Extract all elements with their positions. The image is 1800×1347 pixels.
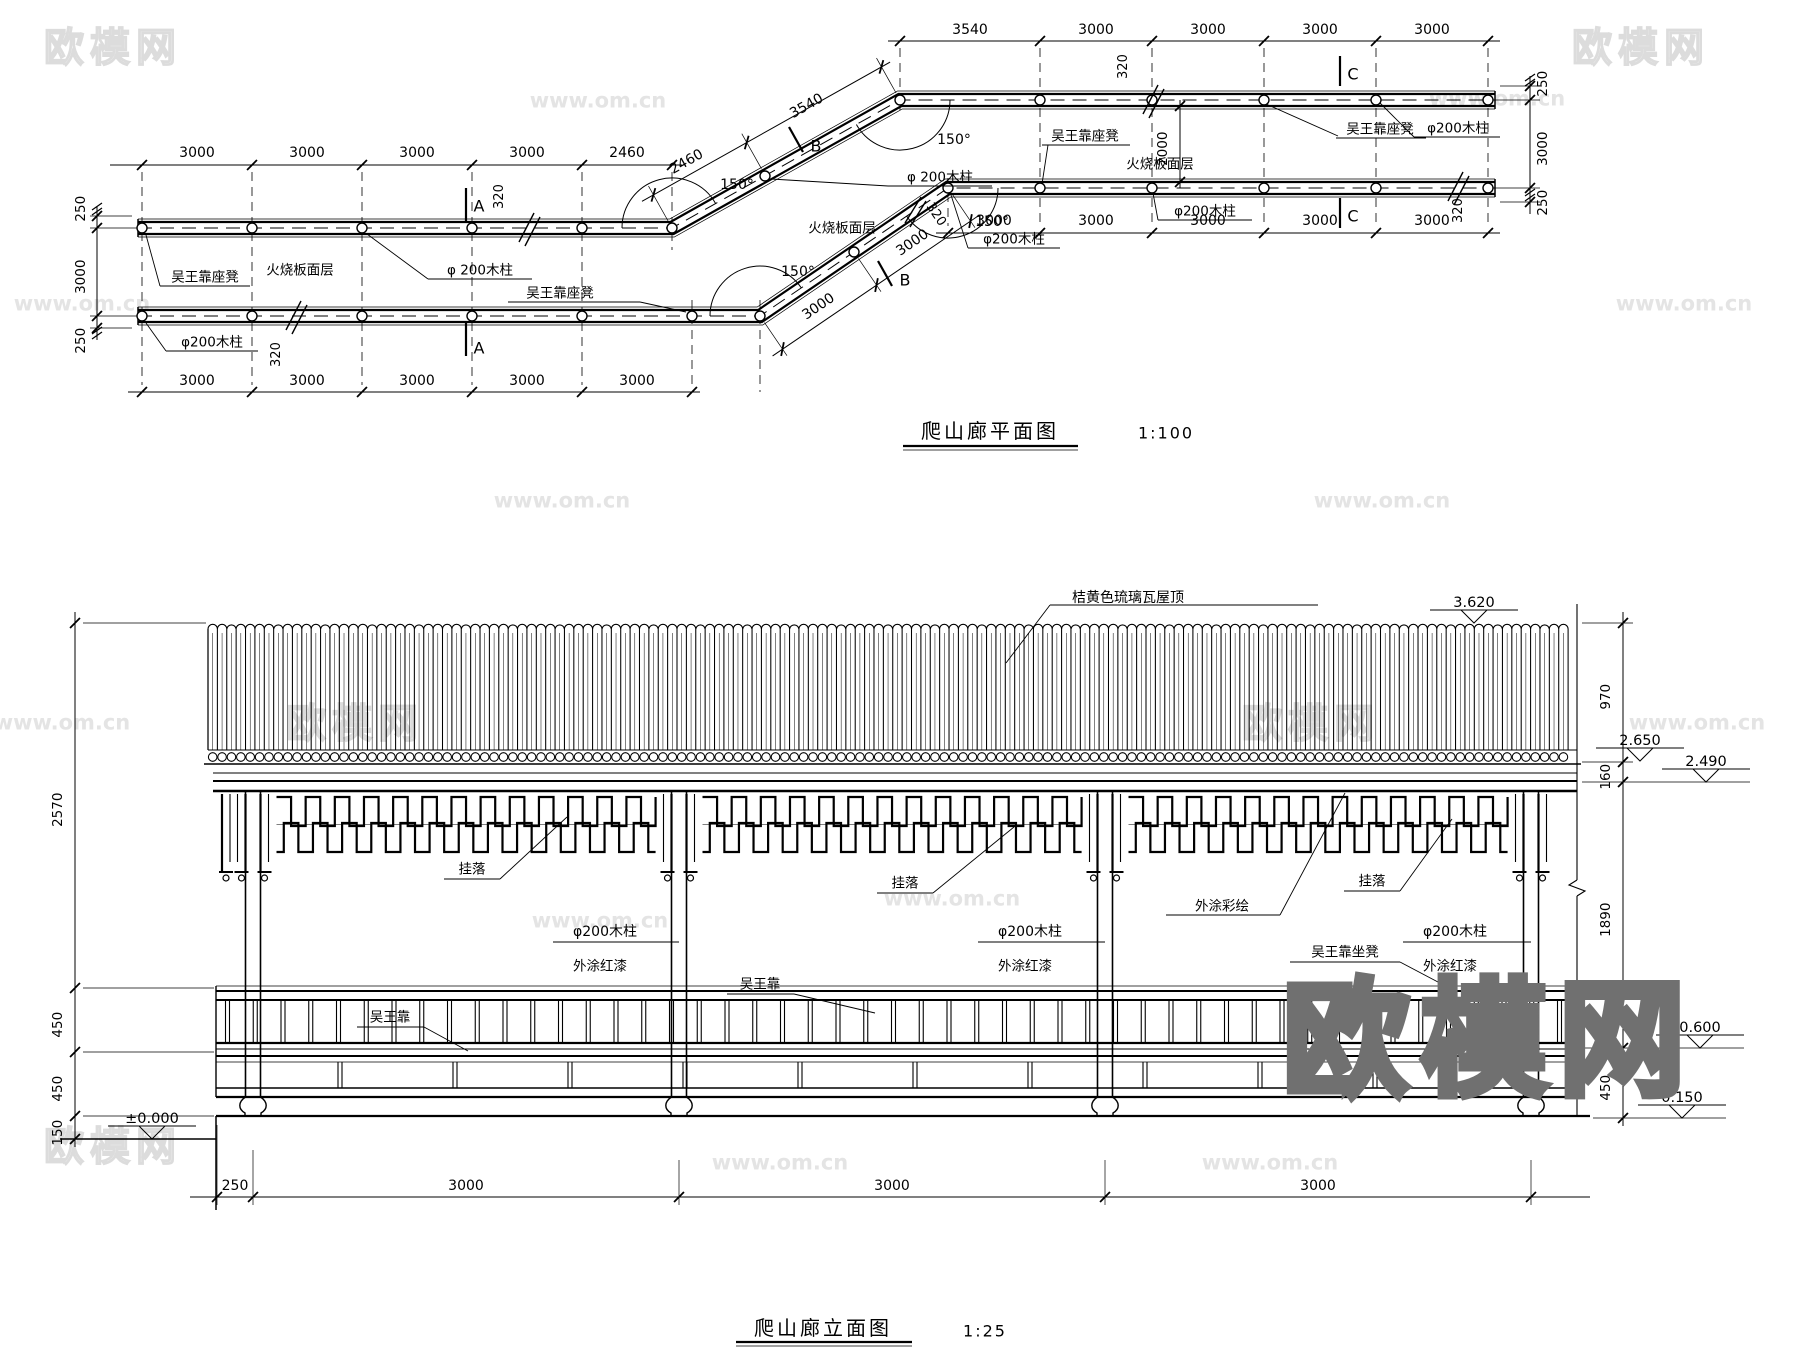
dim-label: 3000: [1414, 213, 1450, 229]
section-mark: A: [474, 197, 485, 216]
section-mark: B: [811, 137, 822, 156]
annotation: 吴王靠座凳: [526, 286, 594, 302]
dim-label: 320: [1116, 54, 1131, 79]
dim-label: 160: [1598, 764, 1614, 790]
dim-label: 3000: [289, 373, 325, 389]
annotation: 吴王靠座凳: [1346, 122, 1414, 138]
dim-label: 2460: [609, 145, 645, 161]
dim-label: 250: [73, 328, 89, 354]
dim-label: 250: [73, 196, 89, 222]
watermark-site: www.om.cn: [1616, 291, 1753, 315]
section-mark: C: [1347, 207, 1358, 226]
dim-label: 3000: [1535, 132, 1551, 166]
dim-label: 450: [50, 1012, 66, 1038]
plan-title: 爬山廊平面图: [921, 419, 1059, 443]
elevation-scale: 1:25: [963, 1322, 1007, 1341]
annotation: φ 200木柱: [907, 170, 973, 186]
annotation: φ200木柱: [1423, 924, 1487, 940]
watermark-site: www.om.cn: [1314, 488, 1451, 512]
section-mark: C: [1347, 65, 1358, 84]
watermark-brand-large: 欧模网: [1283, 967, 1697, 1114]
watermark-brand: 欧模网: [1242, 701, 1380, 747]
watermark-site: www.om.cn: [1202, 1150, 1339, 1174]
dim-label: 970: [1598, 684, 1614, 710]
cad-sheet: 欧模网欧模网欧模网欧模网欧模网www.om.cnwww.om.cnwww.om.…: [0, 0, 1800, 1347]
annotation: φ200木柱: [998, 924, 1062, 940]
dim-label: 2570: [50, 793, 66, 827]
dim-label: 320: [1451, 198, 1466, 223]
annotation: 桔黄色琉璃瓦屋顶: [1072, 589, 1184, 606]
elev-title: 爬山廊立面图1:25: [736, 1316, 1007, 1346]
plan-walls: [138, 91, 1495, 325]
dim-label: 3000: [1300, 1178, 1336, 1194]
plan-dimensions: 3000300030003000246030003000300030003000…: [73, 22, 1551, 397]
dim-label: 150: [50, 1120, 66, 1146]
annotation: 外涂红漆: [573, 959, 627, 975]
section-mark: B: [900, 271, 911, 290]
dim-label: 3000: [1078, 213, 1114, 229]
dim-label: 1890: [1598, 903, 1614, 937]
plan-angles: 150°150°150°150°: [622, 100, 1009, 316]
annotation: 吴王靠座凳: [171, 270, 239, 286]
annotation: 火烧板面层: [808, 221, 876, 237]
dim-label: 3000: [179, 373, 215, 389]
annotation: 外涂红漆: [998, 959, 1052, 975]
level-marker: ±0.000: [125, 1111, 179, 1127]
annotation: 火烧板面层: [266, 263, 334, 279]
dim-label: 3540: [787, 90, 826, 121]
annotation: φ200木柱: [1427, 121, 1489, 137]
annotation: φ200木柱: [1174, 204, 1236, 220]
dim-label: 3000: [799, 290, 837, 323]
dim-label: 3000: [874, 1178, 910, 1194]
dim-label: 3000: [893, 226, 931, 259]
level-marker: 2.490: [1685, 754, 1727, 770]
annotation: 挂落: [892, 876, 920, 892]
watermark-big: 欧模网: [1283, 967, 1697, 1114]
annotation: 挂落: [459, 862, 486, 878]
angle-label: 150°: [781, 264, 815, 280]
dim-label: 3000: [619, 373, 655, 389]
dim-label: 250: [1535, 71, 1551, 97]
annotation: φ200木柱: [573, 924, 637, 940]
dim-label: 3000: [1078, 22, 1114, 38]
dim-label: 3000: [1302, 213, 1338, 229]
angle-label: 150°: [975, 214, 1009, 230]
section-mark: A: [474, 339, 485, 358]
elev-fretwork: [219, 794, 1550, 881]
annotation: φ200木柱: [983, 232, 1045, 248]
dim-label: 250: [1535, 190, 1551, 216]
watermark-brand: 欧模网: [1572, 25, 1710, 71]
dim-label: 3000: [399, 145, 435, 161]
annotation: 吴王靠坐凳: [1311, 945, 1379, 961]
dim-label: 3000: [179, 145, 215, 161]
level-marker: 2.650: [1619, 733, 1661, 749]
elevation-title: 爬山廊立面图: [754, 1316, 892, 1340]
dim-label: 3000: [1190, 22, 1226, 38]
annotation: φ 200木柱: [447, 263, 513, 279]
dim-label: 2460: [667, 146, 706, 177]
dim-label: 320: [269, 342, 284, 367]
angle-label: 150°: [720, 177, 754, 193]
dim-label: 3000: [448, 1178, 484, 1194]
dim-label: 320: [923, 200, 949, 229]
dim-label: 3540: [952, 22, 988, 38]
dim-label: 450: [50, 1076, 66, 1102]
annotation: 挂落: [1359, 874, 1387, 890]
dim-label: 3000: [289, 145, 325, 161]
dim-label: 3000: [1414, 22, 1450, 38]
annotation: φ200木柱: [181, 335, 243, 351]
level-marker: 3.620: [1453, 595, 1495, 611]
dim-label: 3000: [509, 373, 545, 389]
watermark-site: www.om.cn: [494, 488, 631, 512]
annotation: 吴王靠: [370, 1010, 411, 1026]
dim-label: 3000: [1302, 22, 1338, 38]
annotation: 火烧板面层: [1126, 157, 1194, 173]
plan-scale: 1:100: [1138, 424, 1194, 443]
elev-ground: [60, 604, 1590, 1210]
cad-drawing: 欧模网欧模网欧模网欧模网欧模网www.om.cnwww.om.cnwww.om.…: [0, 0, 1800, 1347]
dim-label: 3000: [399, 373, 435, 389]
annotation: 吴王靠: [740, 977, 781, 993]
dim-label: 3000: [73, 260, 89, 294]
watermark-site: www.om.cn: [14, 291, 151, 315]
angle-label: 150°: [937, 132, 971, 148]
plan-beam-marks: 320320320320320: [269, 54, 1469, 367]
plan-labels: 吴王靠座凳火烧板面层φ 200木柱吴王靠座凳φ200木柱火烧板面层φ 200木柱…: [146, 103, 1500, 351]
dim-label: 3000: [509, 145, 545, 161]
watermark-site: www.om.cn: [1629, 710, 1766, 734]
watermark-site: www.om.cn: [712, 1150, 849, 1174]
dim-label: 320: [492, 184, 507, 209]
dim-label: 250: [222, 1178, 249, 1194]
annotation: 外涂彩绘: [1195, 899, 1249, 915]
watermark-site: www.om.cn: [0, 710, 130, 734]
plan-title: 爬山廊平面图1:100: [903, 419, 1194, 450]
watermark-site: www.om.cn: [530, 88, 667, 112]
annotation: 吴王靠座凳: [1051, 129, 1119, 145]
watermark-brand: 欧模网: [44, 25, 182, 71]
